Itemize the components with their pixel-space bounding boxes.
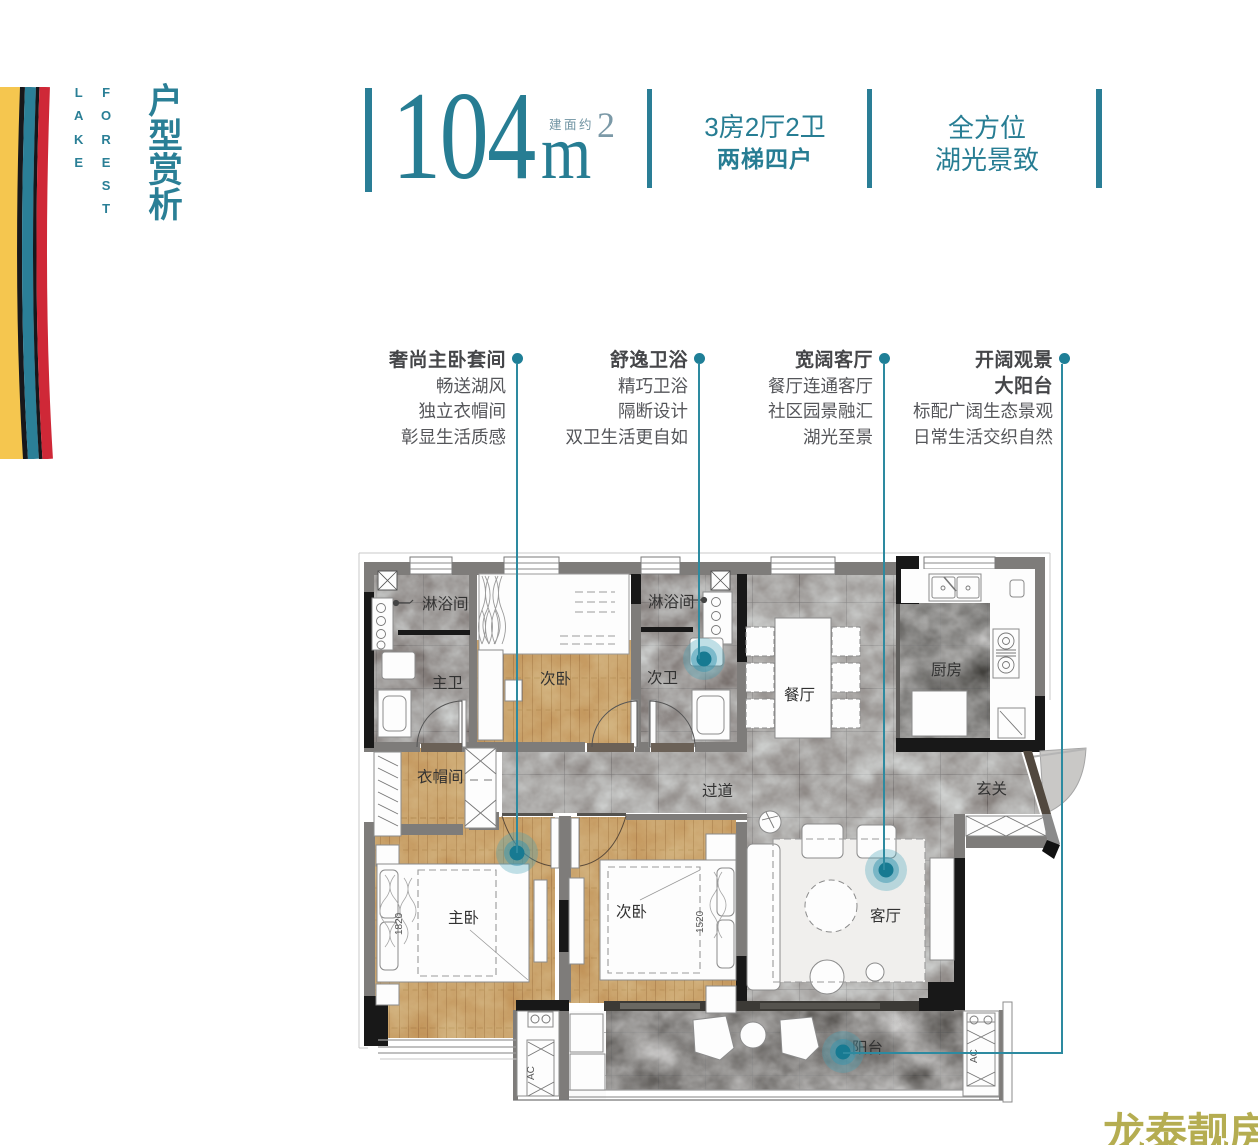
svg-text:淋浴间: 淋浴间 [422, 595, 469, 613]
svg-text:厨房: 厨房 [931, 661, 962, 679]
svg-text:次卧: 次卧 [616, 903, 647, 921]
svg-text:AC: AC [526, 1066, 537, 1080]
svg-text:1520: 1520 [695, 910, 706, 933]
svg-text:次卧: 次卧 [540, 670, 571, 688]
svg-text:餐厅: 餐厅 [784, 686, 815, 704]
svg-text:主卫: 主卫 [432, 674, 463, 692]
svg-text:淋浴间: 淋浴间 [648, 593, 695, 611]
svg-text:过道: 过道 [702, 782, 733, 800]
svg-text:客厅: 客厅 [870, 907, 901, 925]
svg-text:1820: 1820 [394, 912, 405, 935]
svg-text:玄关: 玄关 [976, 780, 1007, 798]
svg-text:主卧: 主卧 [448, 909, 479, 927]
svg-text:衣帽间: 衣帽间 [417, 768, 464, 786]
svg-text:次卫: 次卫 [647, 669, 678, 687]
